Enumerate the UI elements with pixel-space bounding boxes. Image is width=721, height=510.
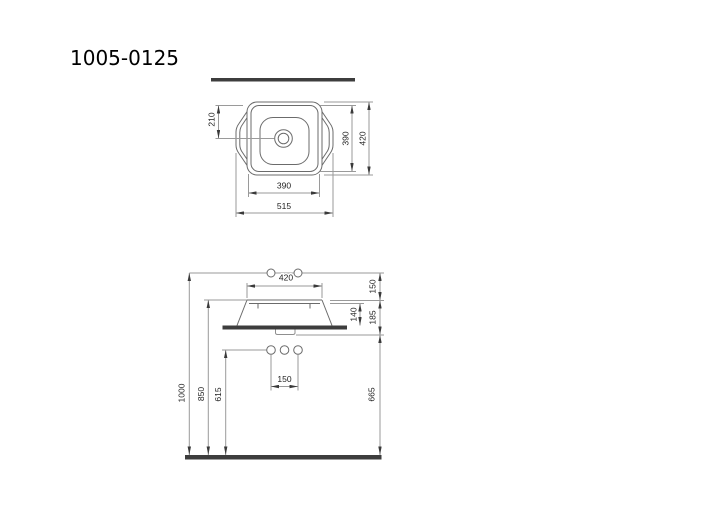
dimension-rim-width: 420 [247,273,322,299]
dimension-left-column: 1000 850 615 [177,273,248,455]
dim-label-inner-width: 390 [277,181,291,191]
drain-stub [276,330,296,335]
dim-label-rim-height: 850 [196,387,206,401]
faucet-hole-right [294,269,302,277]
dim-label-hole-spacing: 150 [277,374,291,384]
dim-label-inner-height: 390 [341,131,351,145]
dim-label-faucet-above-rim: 150 [368,279,378,293]
dim-label-rim-width: 420 [279,273,293,283]
counter-bar [223,326,348,330]
dim-label-drain-offset: 210 [207,112,217,126]
dim-label-underside-height: 665 [367,387,377,401]
wall-holes [222,346,302,355]
technical-drawing-page: { "title": "1005-0125", "colors": { "bac… [0,0,721,510]
dim-label-holes-height: 615 [213,387,223,401]
dimension-inner-width: 390 [249,174,320,197]
dim-label-outer-height: 420 [358,131,368,145]
dimension-inner-height: 390 [320,106,356,172]
dimension-basin-height: 140 [330,304,364,326]
dim-label-faucet-line-height: 1000 [177,383,187,402]
wall-line [211,78,355,82]
dim-label-outer-width: 515 [277,201,291,211]
faucet-hole-left [267,269,275,277]
drawing-canvas: 210 390 420 390 515 [0,0,721,510]
floor-line [185,455,382,460]
basin-profile [237,300,332,326]
dim-label-basin-height: 140 [349,307,359,321]
side-view: 420 150 185 665 140 1000 850 615 [177,269,385,460]
dimension-hole-spacing: 150 [271,355,298,391]
top-view: 210 390 420 390 515 [207,78,374,217]
dim-label-rim-to-underside: 185 [368,310,378,324]
